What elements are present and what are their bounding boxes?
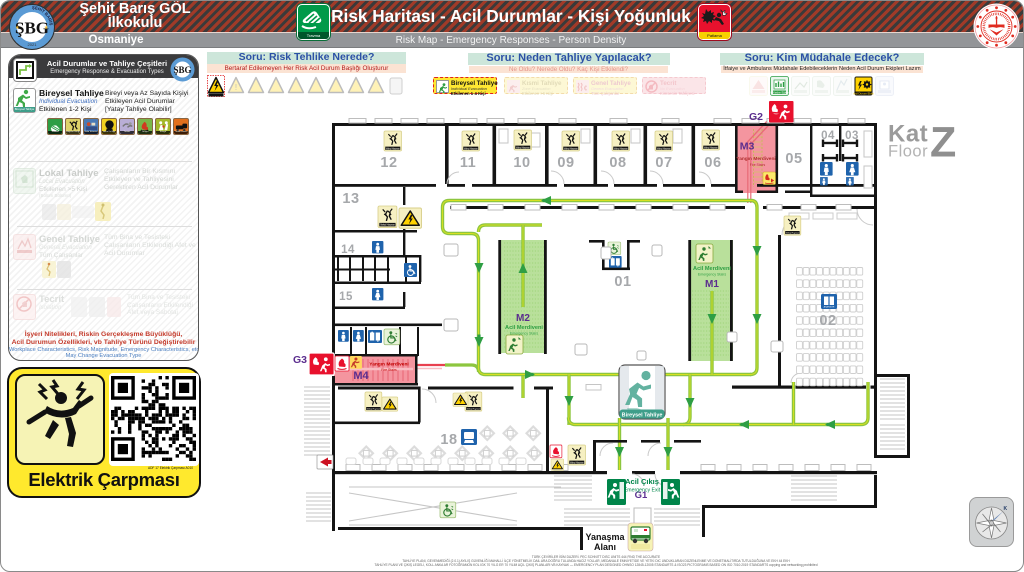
svg-text:13: 13 (342, 191, 359, 207)
svg-text:ASANSÖR: ASANSÖR (824, 306, 835, 309)
svg-text:05: 05 (785, 151, 802, 167)
svg-text:Emergency Stairs: Emergency Stairs (510, 332, 539, 336)
svg-text:Acil Merdiveni: Acil Merdiveni (693, 266, 731, 272)
svg-text:18: 18 (440, 432, 457, 448)
svg-text:Emergency Stairs: Emergency Stairs (698, 273, 727, 277)
svg-text:09: 09 (557, 155, 574, 171)
svg-text:Yanaşma: Yanaşma (585, 532, 625, 542)
svg-text:10: 10 (513, 155, 530, 171)
svg-text:Fire Stairs: Fire Stairs (750, 163, 766, 167)
svg-text:04: 04 (821, 130, 835, 142)
svg-text:Yangın Merdiveni: Yangın Merdiveni (369, 362, 408, 368)
svg-text:07: 07 (655, 155, 672, 171)
svg-text:Acil Çıkış: Acil Çıkış (625, 477, 659, 486)
svg-text:M4: M4 (353, 370, 369, 382)
svg-text:Fire Stairs: Fire Stairs (381, 368, 397, 372)
svg-text:08: 08 (609, 155, 626, 171)
svg-text:Floor: Floor (888, 143, 928, 161)
svg-text:01: 01 (614, 274, 631, 290)
svg-text:Yangın Merdiveni: Yangın Merdiveni (736, 156, 775, 162)
svg-text:M3: M3 (740, 141, 755, 153)
svg-text:G2: G2 (749, 111, 763, 123)
svg-text:G3: G3 (293, 354, 307, 366)
svg-text:Emergency Exit: Emergency Exit (624, 488, 661, 494)
svg-text:K: K (1004, 506, 1008, 512)
svg-text:15: 15 (339, 291, 353, 303)
svg-text:11: 11 (460, 155, 476, 171)
svg-text:02: 02 (819, 313, 836, 329)
svg-text:Alanı: Alanı (594, 542, 616, 552)
svg-text:06: 06 (704, 155, 721, 171)
svg-text:12: 12 (380, 155, 397, 171)
svg-text:14: 14 (341, 244, 355, 256)
svg-text:M2: M2 (516, 313, 530, 324)
svg-text:Acil Merdiveni: Acil Merdiveni (505, 325, 543, 331)
svg-text:Z: Z (930, 119, 956, 167)
svg-text:Bireysel Tahliye: Bireysel Tahliye (622, 413, 663, 419)
svg-text:03: 03 (845, 130, 859, 142)
svg-text:M1: M1 (705, 279, 719, 290)
